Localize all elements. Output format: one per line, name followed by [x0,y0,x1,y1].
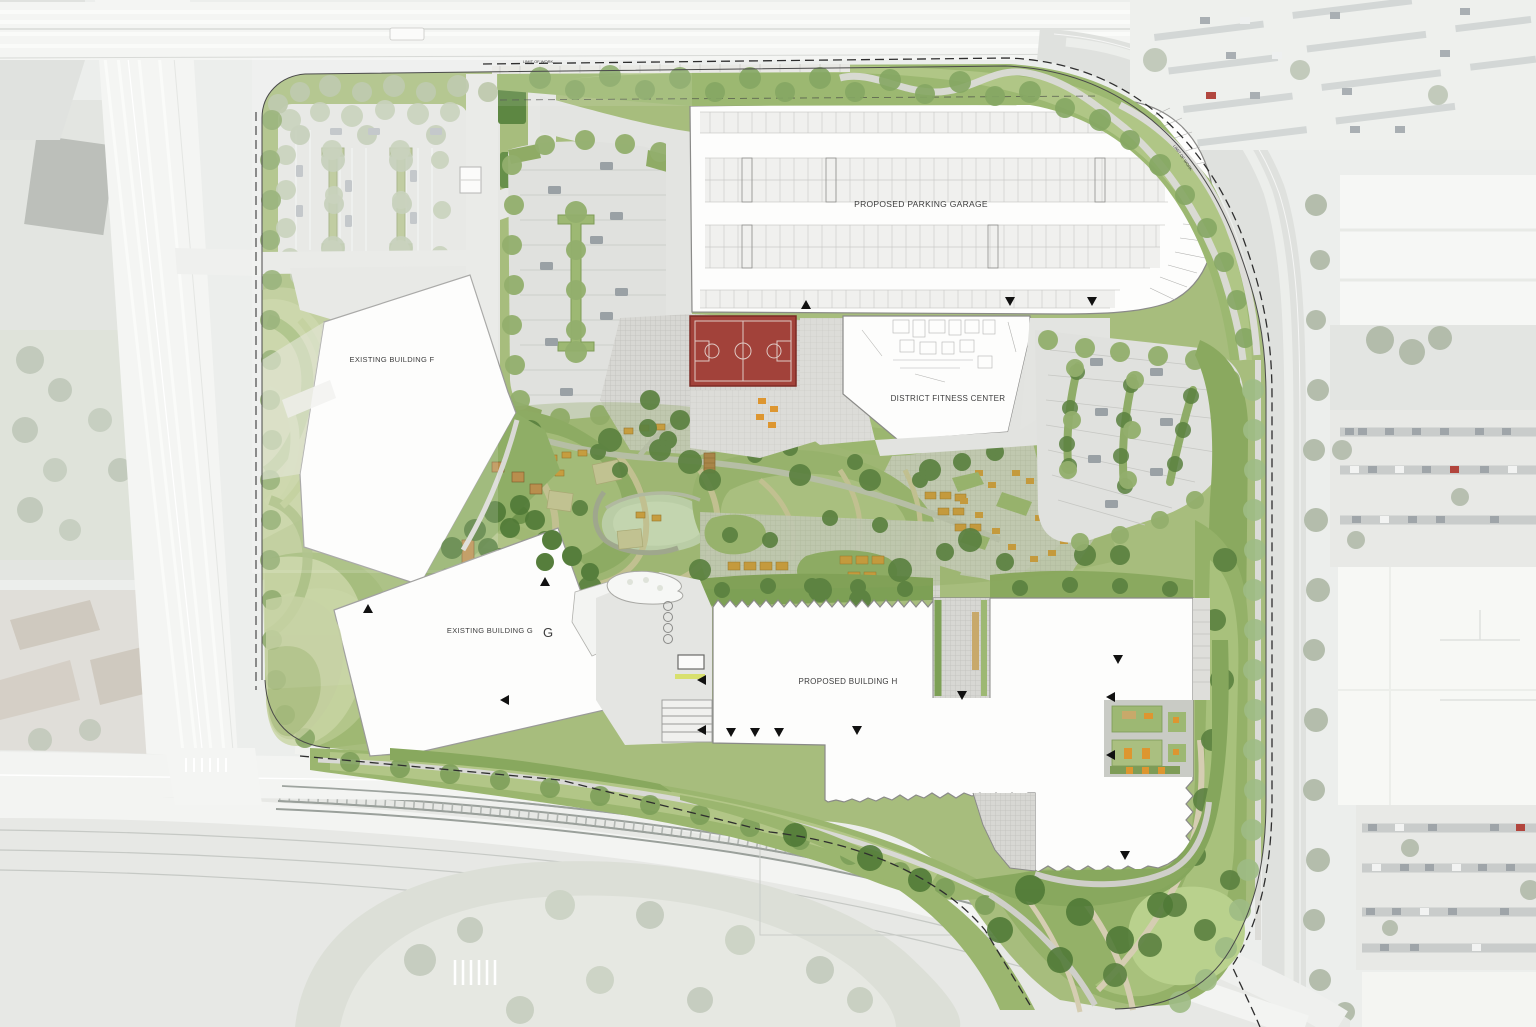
svg-text:PROPOSED BUILDING H: PROPOSED BUILDING H [798,677,897,686]
svg-text:EXISTING BUILDING G: EXISTING BUILDING G [447,626,533,635]
svg-text:G: G [543,625,553,640]
svg-text:EXISTING BUILDING F: EXISTING BUILDING F [350,355,435,364]
svg-text:LIMIT OF WORK: LIMIT OF WORK [523,59,554,64]
svg-text:PROPOSED PARKING GARAGE: PROPOSED PARKING GARAGE [854,199,988,209]
svg-text:DISTRICT FITNESS CENTER: DISTRICT FITNESS CENTER [891,394,1006,403]
